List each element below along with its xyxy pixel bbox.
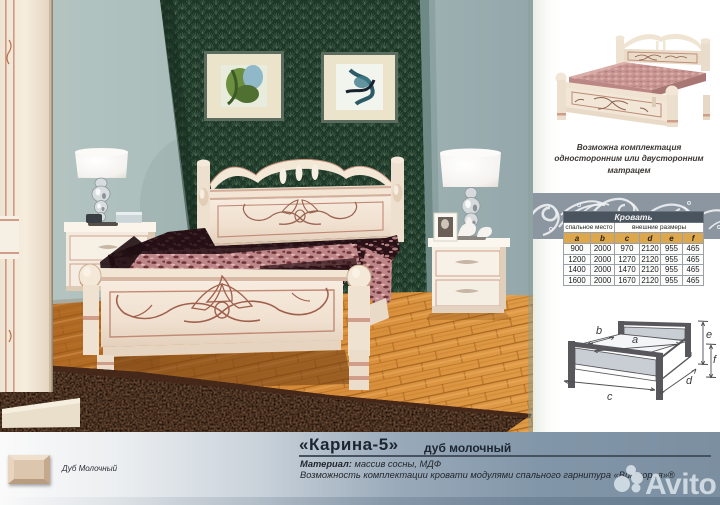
svg-text:Avito: Avito	[645, 468, 717, 501]
svg-text:f: f	[713, 354, 717, 366]
svg-text:e: e	[706, 329, 712, 341]
svg-text:b: b	[596, 325, 602, 337]
svg-text:c: c	[607, 391, 613, 403]
svg-text:a: a	[632, 334, 638, 346]
svg-text:d: d	[686, 375, 693, 387]
